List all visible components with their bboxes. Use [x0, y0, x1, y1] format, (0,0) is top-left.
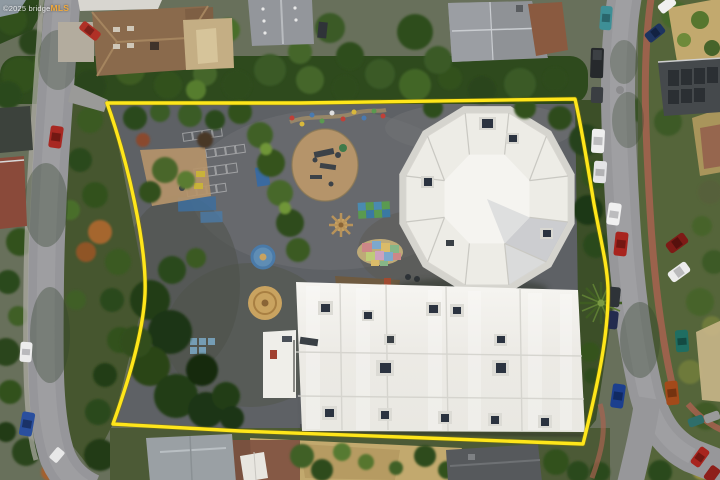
structure-left-edge	[0, 106, 33, 153]
parked-car-orange	[664, 380, 679, 405]
aerial-photograph	[0, 0, 720, 480]
parked-truck-black	[590, 48, 604, 78]
house-bottom-center	[446, 444, 542, 480]
white-tent	[240, 452, 268, 480]
parked-car-red	[613, 231, 628, 256]
watermark-brand-logo: MLS	[51, 3, 70, 13]
house-solar-right	[658, 58, 720, 116]
watermark-text: ©2025 bridge	[3, 4, 51, 13]
checkerboard-marking	[358, 201, 391, 219]
watermark: ©2025 bridgeMLS	[3, 4, 69, 13]
parked-car-white	[19, 342, 32, 363]
play-structure-area-center	[292, 129, 358, 201]
chimney	[150, 42, 159, 50]
tan-circle-marking	[248, 286, 282, 320]
house-bottom-left	[146, 434, 236, 480]
parked-car-dark	[591, 87, 604, 103]
parked-car-white	[593, 161, 608, 184]
parked-car	[317, 22, 328, 39]
parked-car-teal	[675, 330, 690, 353]
parked-car-white	[591, 129, 605, 154]
aerial-photo: ©2025 bridgeMLS	[0, 0, 720, 480]
main-building	[263, 282, 586, 437]
chimney	[516, 5, 523, 12]
house-top-right	[448, 1, 568, 62]
house-left-edge-red	[0, 156, 27, 229]
sun-marking	[329, 213, 353, 237]
parked-car-teal	[599, 6, 613, 31]
